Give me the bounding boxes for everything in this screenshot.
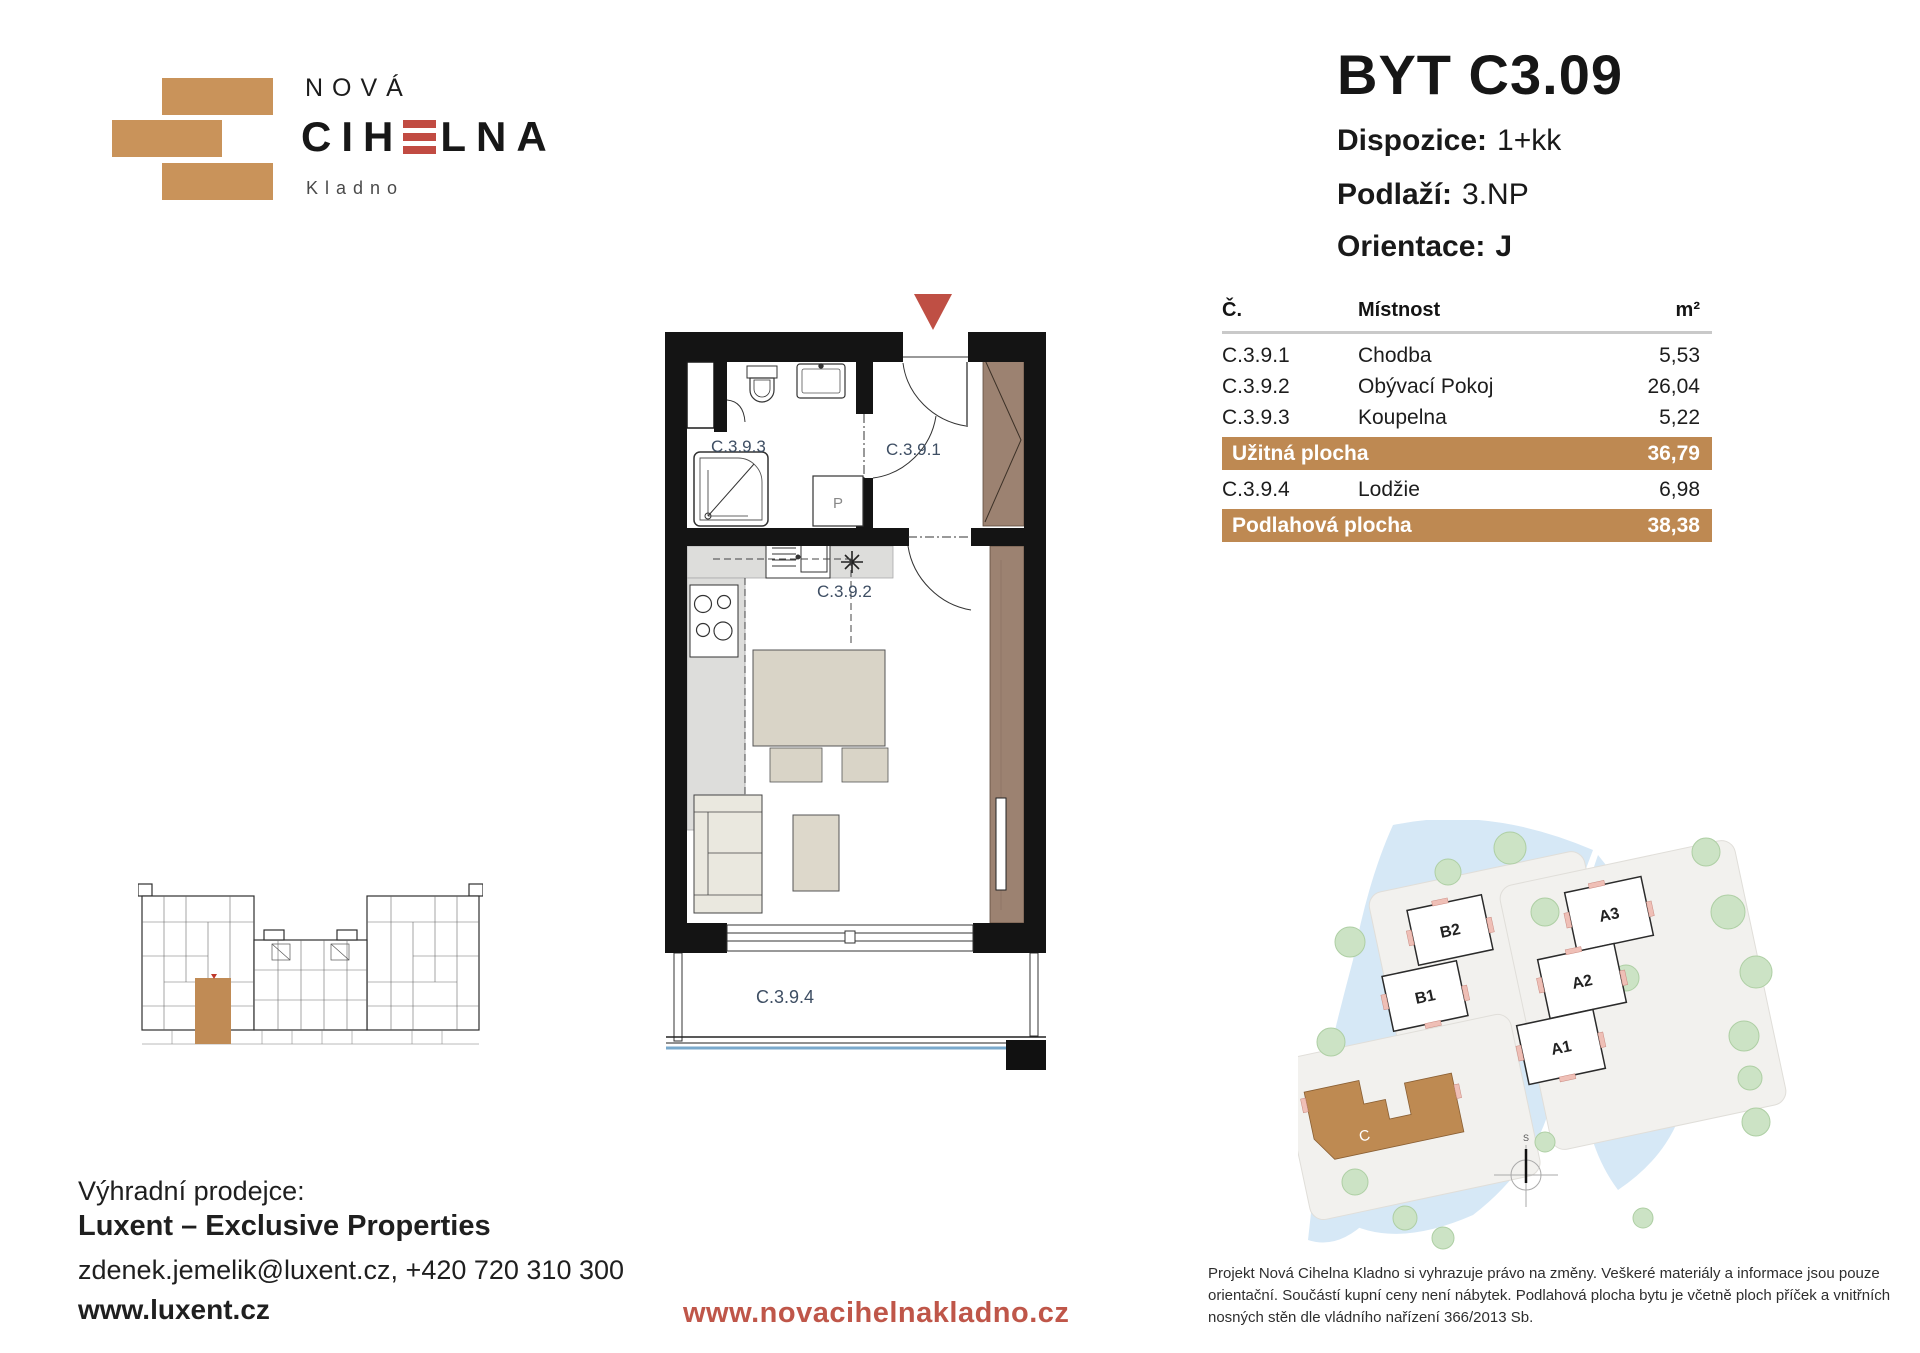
logo-brick-icon xyxy=(162,163,273,200)
room-label-bathroom: C.3.9.3 xyxy=(711,437,766,456)
cell-number: C.3.9.2 xyxy=(1222,375,1358,399)
spec-dispozice: Dispozice:1+kk xyxy=(1337,124,1561,158)
spec-label: Orientace: xyxy=(1337,230,1485,263)
seller-intro: Výhradní prodejce: xyxy=(78,1176,305,1207)
logo-brick-icon xyxy=(112,120,222,157)
logo-word-cihelna-pre: CIH xyxy=(301,113,403,161)
site-plan: B2 B1 A3 A2 A1 xyxy=(1298,820,1803,1270)
disclaimer: Projekt Nová Cihelna Kladno si vyhrazuje… xyxy=(1208,1263,1908,1329)
logo-word-nova: NOVÁ xyxy=(305,74,412,103)
chair xyxy=(770,748,822,782)
tv-wall-unit xyxy=(990,546,1024,923)
cell-number: C.3.9.3 xyxy=(1222,406,1358,430)
spec-podlazi: Podlaží:3.NP xyxy=(1337,178,1529,212)
logo-city: Kladno xyxy=(306,178,404,199)
spec-orientace: Orientace:J xyxy=(1337,230,1512,264)
cell-area: 5,53 xyxy=(1616,344,1712,368)
cell-area: 5,22 xyxy=(1616,406,1712,430)
band-label: Užitná plocha xyxy=(1232,442,1369,466)
entry-niche xyxy=(687,362,714,428)
wardrobe xyxy=(983,356,1024,526)
room-label-hall: C.3.9.1 xyxy=(886,440,941,459)
disclaimer-line: Projekt Nová Cihelna Kladno si vyhrazuje… xyxy=(1208,1263,1908,1285)
niche-door-arc xyxy=(727,400,745,422)
usable-area-band: Užitná plocha 36,79 xyxy=(1222,437,1712,470)
cell-area: 6,98 xyxy=(1616,478,1712,502)
logo-word-cihelna: CIH LNA xyxy=(301,113,557,161)
stove xyxy=(690,585,738,657)
seller-name: Luxent – Exclusive Properties xyxy=(78,1210,491,1243)
seller-website-link[interactable]: www.luxent.cz xyxy=(78,1294,270,1326)
sink xyxy=(797,364,845,398)
seller-contact[interactable]: zdenek.jemelik@luxent.cz, +420 720 310 3… xyxy=(78,1255,624,1286)
datasheet-page: NOVÁ CIH LNA Kladno BYT C3.09 Dispozice:… xyxy=(0,0,1920,1353)
compass-north-label: S xyxy=(1523,1133,1529,1143)
spec-value: J xyxy=(1495,230,1512,263)
col-header-area: m² xyxy=(1616,299,1712,322)
band-label: Podlahová plocha xyxy=(1232,514,1412,538)
loggia-rail xyxy=(674,953,682,1041)
table-header-row: Č. Místnost m² xyxy=(1222,299,1712,334)
spec-value: 1+kk xyxy=(1497,124,1561,157)
toilet xyxy=(747,366,777,402)
tv xyxy=(996,798,1006,890)
cell-room: Lodžie xyxy=(1358,478,1616,502)
logo-brick-icon xyxy=(162,78,273,115)
disclaimer-line: nosných stěn dle vládního nařízení 366/2… xyxy=(1208,1307,1908,1329)
band-value: 38,38 xyxy=(1647,514,1700,538)
chair xyxy=(842,748,888,782)
room-label-loggia: C.3.9.4 xyxy=(756,987,814,1007)
cell-area: 26,04 xyxy=(1616,375,1712,399)
dining-table xyxy=(753,650,885,746)
loggia-rail xyxy=(1030,953,1038,1036)
cell-room: Koupelna xyxy=(1358,406,1616,430)
french-window xyxy=(727,925,973,951)
cell-room: Obývací Pokoj xyxy=(1358,375,1616,399)
total-area-band: Podlahová plocha 38,38 xyxy=(1222,509,1712,542)
page-title: BYT C3.09 xyxy=(1337,42,1623,107)
table-row: C.3.9.4 Lodžie 6,98 xyxy=(1222,474,1712,505)
washing-machine: P xyxy=(813,476,863,526)
building-floor-overview xyxy=(138,882,483,1062)
cell-room: Chodba xyxy=(1358,344,1616,368)
spec-label: Dispozice: xyxy=(1337,124,1487,157)
cell-number: C.3.9.1 xyxy=(1222,344,1358,368)
room-label-living: C.3.9.2 xyxy=(817,582,872,601)
washer-label: P xyxy=(833,495,843,512)
col-header-room: Místnost xyxy=(1358,299,1616,322)
col-header-number: Č. xyxy=(1222,299,1358,322)
apartment-floorplan: P C.3.9.3 C.3.9.1 C.3.9.2 C.3.9.4 xyxy=(630,270,1110,1080)
shower xyxy=(694,452,768,526)
loggia-corner-pillar xyxy=(1006,1040,1046,1070)
spec-value: 3.NP xyxy=(1462,178,1529,211)
spec-label: Podlaží: xyxy=(1337,178,1452,211)
disclaimer-line: orientační. Součástí kupní ceny není náb… xyxy=(1208,1285,1908,1307)
table-row: C.3.9.2 Obývací Pokoj 26,04 xyxy=(1222,371,1712,402)
highlighted-unit xyxy=(195,978,231,1044)
project-website-link[interactable]: www.novacihelnakladno.cz xyxy=(683,1297,1069,1330)
logo-red-e-icon xyxy=(403,120,436,154)
living-room-door xyxy=(908,537,971,610)
entrance-arrow-icon xyxy=(914,294,952,330)
band-value: 36,79 xyxy=(1647,442,1700,466)
room-table: Č. Místnost m² C.3.9.1 Chodba 5,53 C.3.9… xyxy=(1222,299,1712,546)
sofa xyxy=(694,795,762,913)
table-row: C.3.9.1 Chodba 5,53 xyxy=(1222,340,1712,371)
table-row: C.3.9.3 Koupelna 5,22 xyxy=(1222,402,1712,433)
coffee-table xyxy=(793,815,839,891)
logo-word-cihelna-post: LNA xyxy=(440,113,556,161)
cell-number: C.3.9.4 xyxy=(1222,478,1358,502)
